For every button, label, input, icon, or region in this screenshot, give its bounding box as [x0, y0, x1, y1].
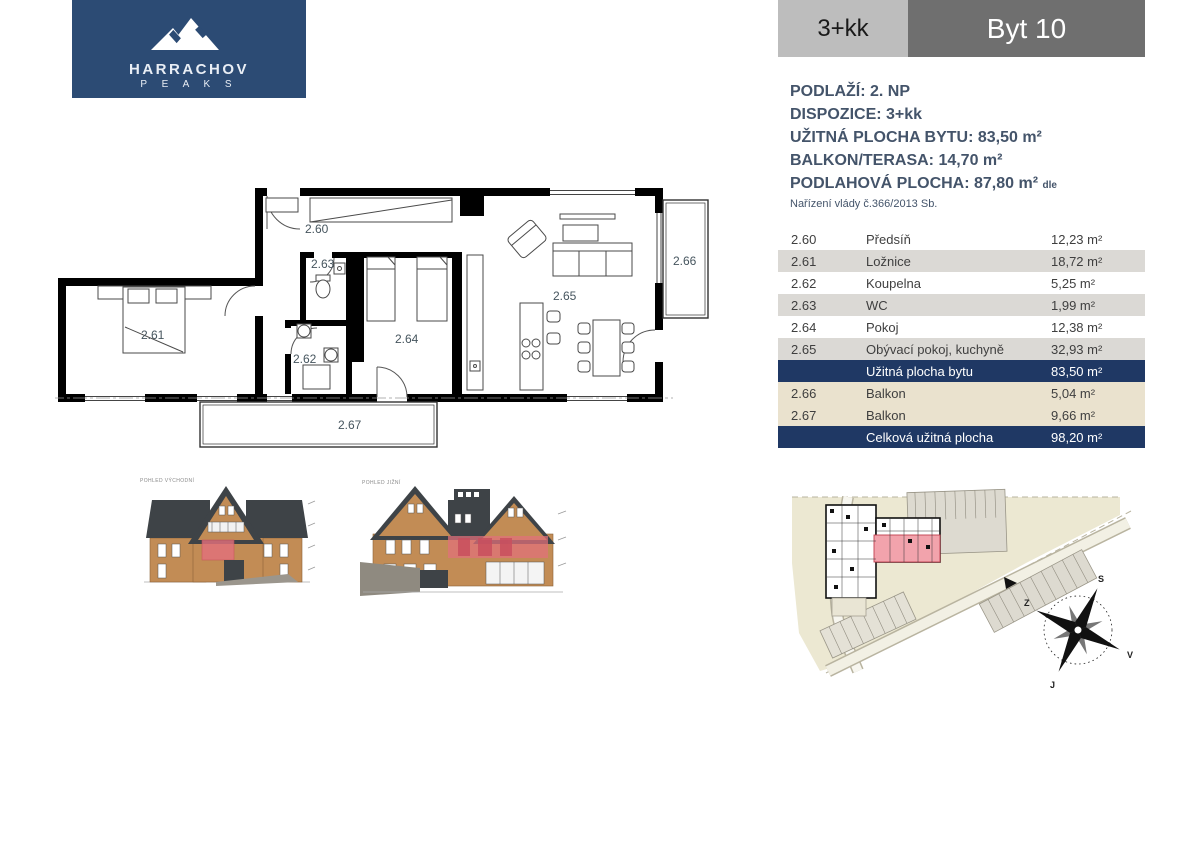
elevation-south-drawing — [360, 486, 566, 596]
info-layout: DISPOZICE: 3+kk — [790, 103, 1150, 126]
info-regulation: Nařízení vlády č.366/2013 Sb. — [790, 197, 1150, 212]
compass-north-label: S — [1098, 574, 1104, 584]
table-row: 2.62Koupelna5,25 m² — [778, 272, 1145, 294]
table-row: 2.60Předsíň12,23 m² — [778, 228, 1145, 250]
table-row: 2.61Ložnice18,72 m² — [778, 250, 1145, 272]
room-label-living: 2.65 — [553, 289, 577, 303]
logo: HARRACHOV P E A K S — [72, 0, 306, 98]
info-balcony: BALKON/TERASA: 14,70 m² — [790, 149, 1150, 172]
info-usable: UŽITNÁ PLOCHA BYTU: 83,50 m² — [790, 126, 1150, 149]
elevation-south-label: POHLED JIŽNÍ — [362, 478, 401, 486]
unit-title: Byt 10 — [908, 0, 1145, 57]
info-floor: PODLAŽÍ: 2. NP — [790, 80, 1150, 103]
table-row: 2.63WC1,99 m² — [778, 294, 1145, 316]
compass-east-label: V — [1127, 650, 1133, 660]
logo-subtitle: P E A K S — [140, 79, 237, 90]
info-suffix: dle — [1043, 180, 1057, 191]
elevation-east: POHLED VÝCHODNÍ — [138, 474, 318, 596]
table-row: 2.64Pokoj12,38 m² — [778, 316, 1145, 338]
room-label-bath: 2.62 — [293, 352, 317, 366]
highlighted-apartment — [874, 535, 940, 562]
elevation-south: POHLED JIŽNÍ — [358, 474, 573, 606]
elevation-east-label: POHLED VÝCHODNÍ — [140, 477, 195, 484]
mountain-icon — [129, 10, 249, 62]
room-label-bedroom: 2.61 — [141, 328, 165, 342]
info-floor-area: PODLAHOVÁ PLOCHA: 87,80 m² dle — [790, 172, 1150, 197]
apartment-info: PODLAŽÍ: 2. NP DISPOZICE: 3+kk UŽITNÁ PL… — [790, 80, 1150, 212]
table-row-total: Celková užitná plocha98,20 m² — [778, 426, 1145, 448]
elevation-east-drawing — [146, 486, 315, 586]
table-row: 2.67Balkon9,66 m² — [778, 404, 1145, 426]
table-row-subtotal: Užitná plocha bytu83,50 m² — [778, 360, 1145, 382]
table-row: 2.65Obývací pokoj, kuchyně32,93 m² — [778, 338, 1145, 360]
apartment-sheet: HARRACHOV P E A K S 3+kk Byt 10 PODLAŽÍ:… — [0, 0, 1200, 848]
logo-name: HARRACHOV — [129, 62, 249, 77]
table-row: 2.66Balkon5,04 m² — [778, 382, 1145, 404]
room-label-room: 2.64 — [395, 332, 419, 346]
floor-plan: 2.60 2.61 2.62 2.63 2.64 2.65 2.66 2.67 — [55, 165, 715, 460]
room-label-balcony-east: 2.66 — [673, 254, 697, 268]
compass-west-label: Z — [1024, 598, 1030, 608]
room-label-balcony-south: 2.67 — [338, 418, 362, 432]
room-table: 2.60Předsíň12,23 m² 2.61Ložnice18,72 m² … — [778, 228, 1145, 448]
compass-south-label: J — [1050, 680, 1055, 690]
room-label-wc: 2.63 — [311, 257, 335, 271]
room-label-hall: 2.60 — [305, 222, 329, 236]
layout-badge: 3+kk — [778, 0, 908, 57]
site-plan: S V J Z — [786, 483, 1138, 715]
